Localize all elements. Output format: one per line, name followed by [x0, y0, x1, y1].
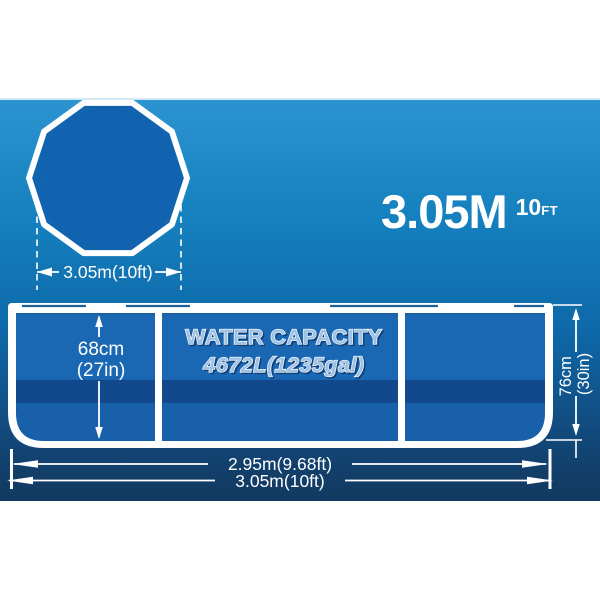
- arrow-right-icon: [166, 268, 181, 277]
- arrow-left-icon: [12, 460, 38, 468]
- arrow-right-icon: [522, 460, 548, 468]
- water-capacity-title: WATER CAPACITY: [185, 325, 382, 349]
- water-capacity-value: 4672L(1235gal): [202, 353, 364, 377]
- arrow-left-icon: [37, 268, 52, 277]
- arrow-up-icon: [572, 308, 579, 320]
- outer-height-label: 76cm (30in): [557, 352, 593, 397]
- arrow-down-icon: [572, 424, 579, 436]
- outer-height-metric: 76cm: [557, 356, 575, 396]
- extension-line-right: [549, 449, 552, 489]
- outer-width-label: 3.05m(10ft): [235, 471, 324, 491]
- width-dimensions: 2.95m(9.68ft) 3.05m(10ft): [7, 449, 553, 491]
- outer-height-imperial: (30in): [575, 353, 593, 395]
- diameter-label: 3.05m(10ft): [63, 262, 152, 282]
- pool-dimension-diagram: 3.05M 10 FT: [0, 0, 600, 600]
- extension-line-left: [10, 449, 13, 489]
- frame-leg-right: [398, 313, 405, 441]
- side-view: 68cm (27in) WATER CAPACITY WATER CAPACIT…: [7, 303, 593, 491]
- outer-height-dimension: 76cm (30in): [546, 305, 593, 458]
- pool-top-view-frame: [29, 103, 187, 253]
- inner-height-metric: 68cm: [78, 339, 124, 360]
- frame-leg-left: [155, 313, 162, 441]
- inner-height-imperial: (27in): [77, 360, 126, 381]
- top-view: 3.05m(10ft): [29, 103, 187, 290]
- diagram-canvas: 3.05m(10ft) 68cm: [0, 0, 600, 600]
